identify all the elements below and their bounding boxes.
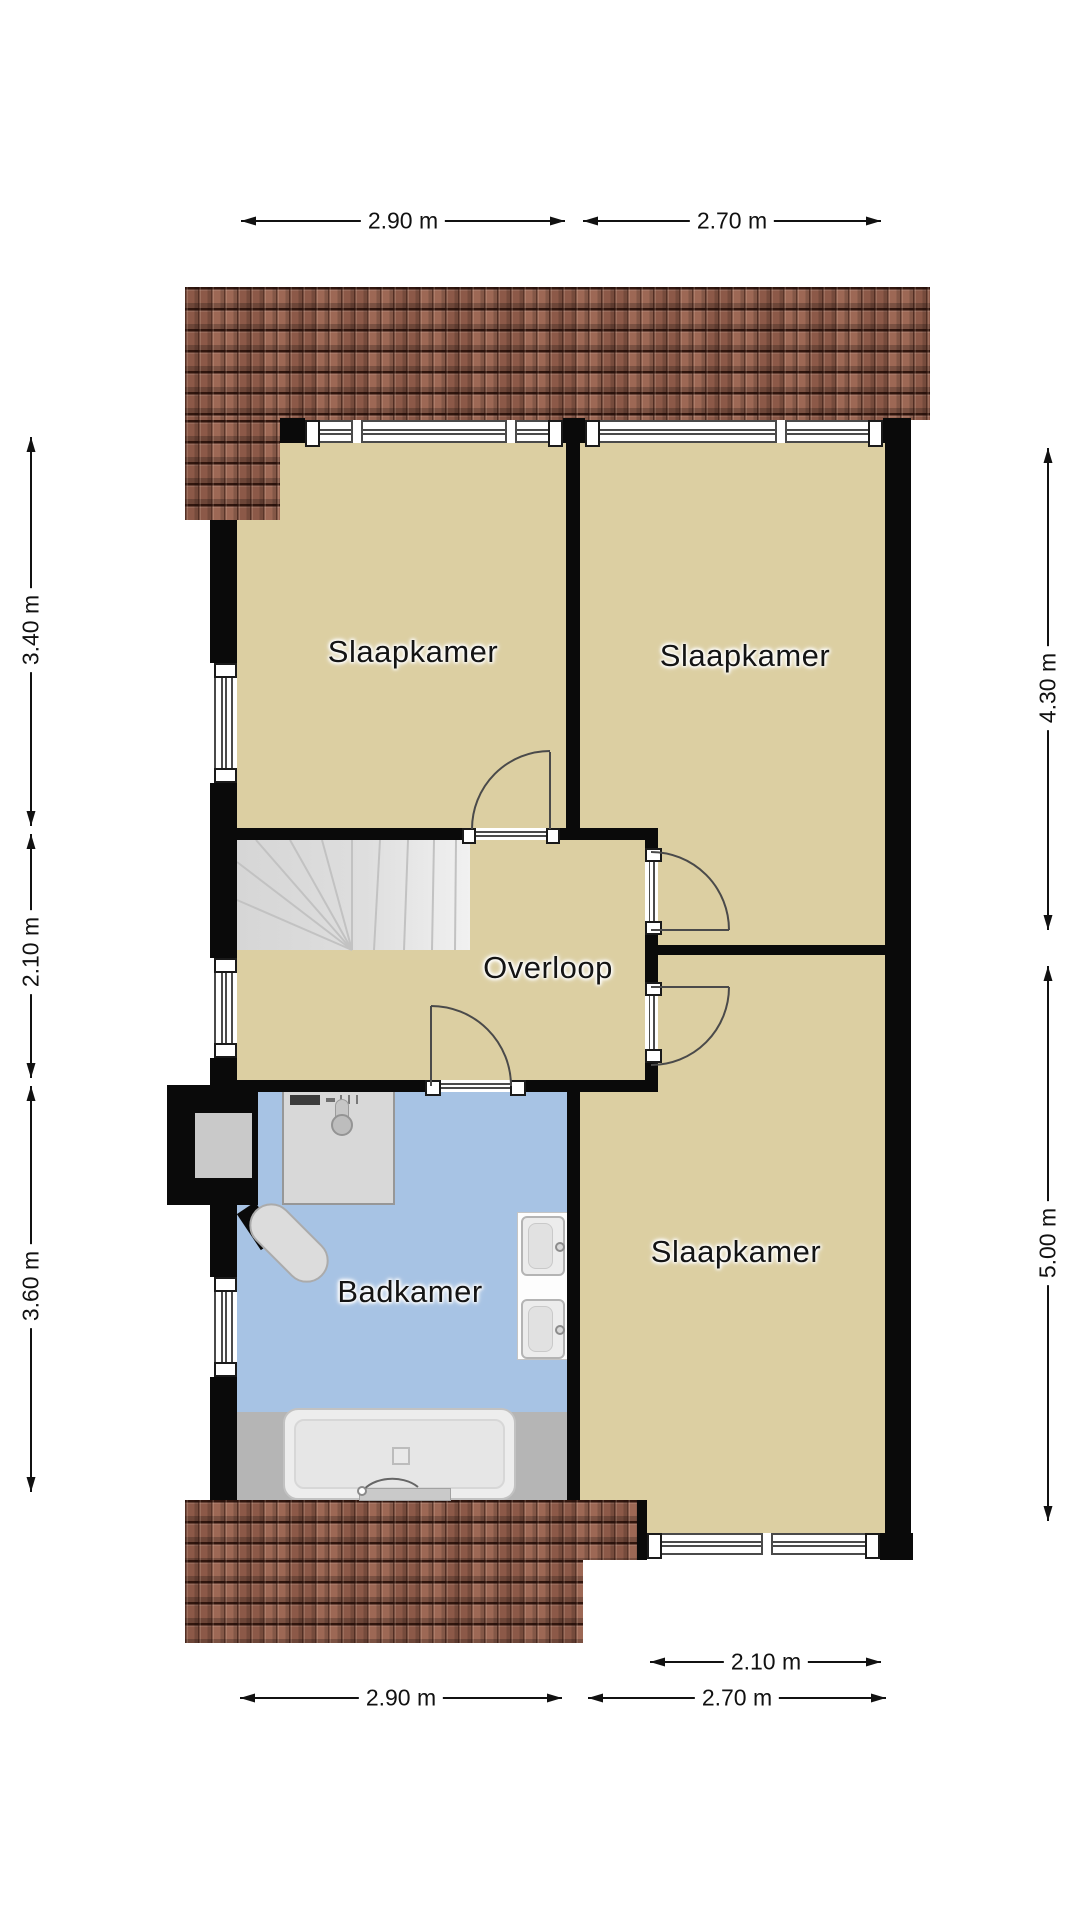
window-jamb [647, 1533, 662, 1559]
wall-right-exterior [885, 418, 911, 1533]
wall-top-pier-middle [563, 418, 585, 443]
wall-bedrooms-landing-a [237, 828, 462, 840]
dimension-left-1: 3.40 m [18, 588, 45, 672]
door-jamb [546, 828, 560, 844]
washing-machine [282, 1090, 395, 1205]
sink-1-basin [528, 1223, 553, 1269]
window-jamb [548, 420, 563, 447]
roof-bottom-band-lower [185, 1560, 583, 1643]
window-jamb [214, 768, 237, 783]
wall-top-pier-left [280, 418, 305, 443]
sink-2-faucet [555, 1325, 565, 1335]
window-top-bedroom-left [305, 420, 563, 443]
roof-top-left-wrap [185, 420, 280, 520]
window-jamb [214, 1043, 237, 1058]
dimension-right-2: 5.00 m [1035, 1201, 1062, 1285]
wall-left-seg-4 [210, 1205, 237, 1277]
door-opening-bedroom-bottom-right [645, 982, 658, 1063]
door-jamb [425, 1080, 441, 1096]
window-jamb [868, 420, 883, 447]
window-left-3 [214, 1277, 233, 1377]
window-jamb [214, 1277, 237, 1292]
floorplan-canvas: Slaapkamer Slaapkamer Slaapkamer Overloo… [0, 0, 1080, 1920]
sink-1-faucet [555, 1242, 565, 1252]
washer-door [331, 1114, 353, 1136]
door-opening-bedroom-top-left [462, 828, 560, 840]
wall-bottom-right-corner [880, 1533, 913, 1560]
dimension-top-2: 2.70 m [690, 208, 774, 235]
door-jamb [645, 982, 662, 996]
window-jamb [865, 1533, 880, 1559]
wall-left-seg-5 [210, 1377, 237, 1500]
chimney-duct [195, 1113, 252, 1178]
wall-landing-bathroom-a [237, 1080, 425, 1092]
window-divider [505, 420, 517, 443]
wall-between-top-bedrooms [566, 443, 580, 828]
sink-counter [517, 1212, 568, 1360]
sink-1 [521, 1216, 565, 1276]
window-jamb [305, 420, 320, 447]
dimension-bottom-inner: 2.10 m [724, 1649, 808, 1676]
washer-control-panel [290, 1095, 320, 1105]
label-landing: Overloop [483, 950, 613, 986]
window-divider [761, 1533, 773, 1555]
wall-landing-bathroom-b [526, 1080, 658, 1092]
bathtub [283, 1408, 516, 1500]
label-bathroom: Badkamer [337, 1274, 482, 1310]
window-jamb [214, 1362, 237, 1377]
window-bottom-bedroom [647, 1533, 880, 1555]
wall-between-right-bedrooms [658, 945, 885, 955]
label-bedroom-top-right: Slaapkamer [660, 638, 830, 674]
window-left-2 [214, 958, 233, 1058]
window-left-1 [214, 663, 233, 783]
dimension-bottom-1: 2.90 m [359, 1685, 443, 1712]
door-jamb [645, 1049, 662, 1063]
dimension-right-1: 4.30 m [1035, 646, 1062, 730]
sink-2 [521, 1299, 565, 1359]
dimension-left-3: 3.60 m [18, 1244, 45, 1328]
wall-bathroom-east [567, 1092, 580, 1500]
window-jamb [585, 420, 600, 447]
door-jamb [645, 848, 662, 862]
bathtub-faucet-bar [359, 1488, 451, 1501]
door-jamb [510, 1080, 526, 1096]
dimension-top-1: 2.90 m [361, 208, 445, 235]
bathtub-drain [392, 1447, 410, 1465]
label-bedroom-bottom-right: Slaapkamer [651, 1234, 821, 1270]
door-opening-bedroom-top-right [645, 848, 658, 935]
dimension-bottom-2: 2.70 m [695, 1685, 779, 1712]
window-jamb [214, 958, 237, 973]
window-divider [351, 420, 363, 443]
wall-left-seg-2 [210, 783, 237, 958]
door-jamb [462, 828, 476, 844]
wall-bottom-cap [637, 1500, 647, 1560]
wall-bedrooms-landing-b [560, 828, 658, 840]
door-jamb [645, 921, 662, 935]
roof-top-band [185, 287, 930, 420]
dimension-left-2: 2.10 m [18, 910, 45, 994]
washer-dial [326, 1098, 335, 1102]
window-jamb [214, 663, 237, 678]
door-opening-bathroom [425, 1080, 526, 1092]
window-top-bedroom-right [585, 420, 883, 443]
sink-2-basin [528, 1306, 553, 1352]
wall-left-seg-3 [210, 1058, 237, 1085]
window-divider [775, 420, 787, 443]
roof-bottom-band-upper [185, 1500, 637, 1560]
wall-left-seg-1 [210, 520, 237, 663]
label-bedroom-top-left: Slaapkamer [328, 634, 498, 670]
